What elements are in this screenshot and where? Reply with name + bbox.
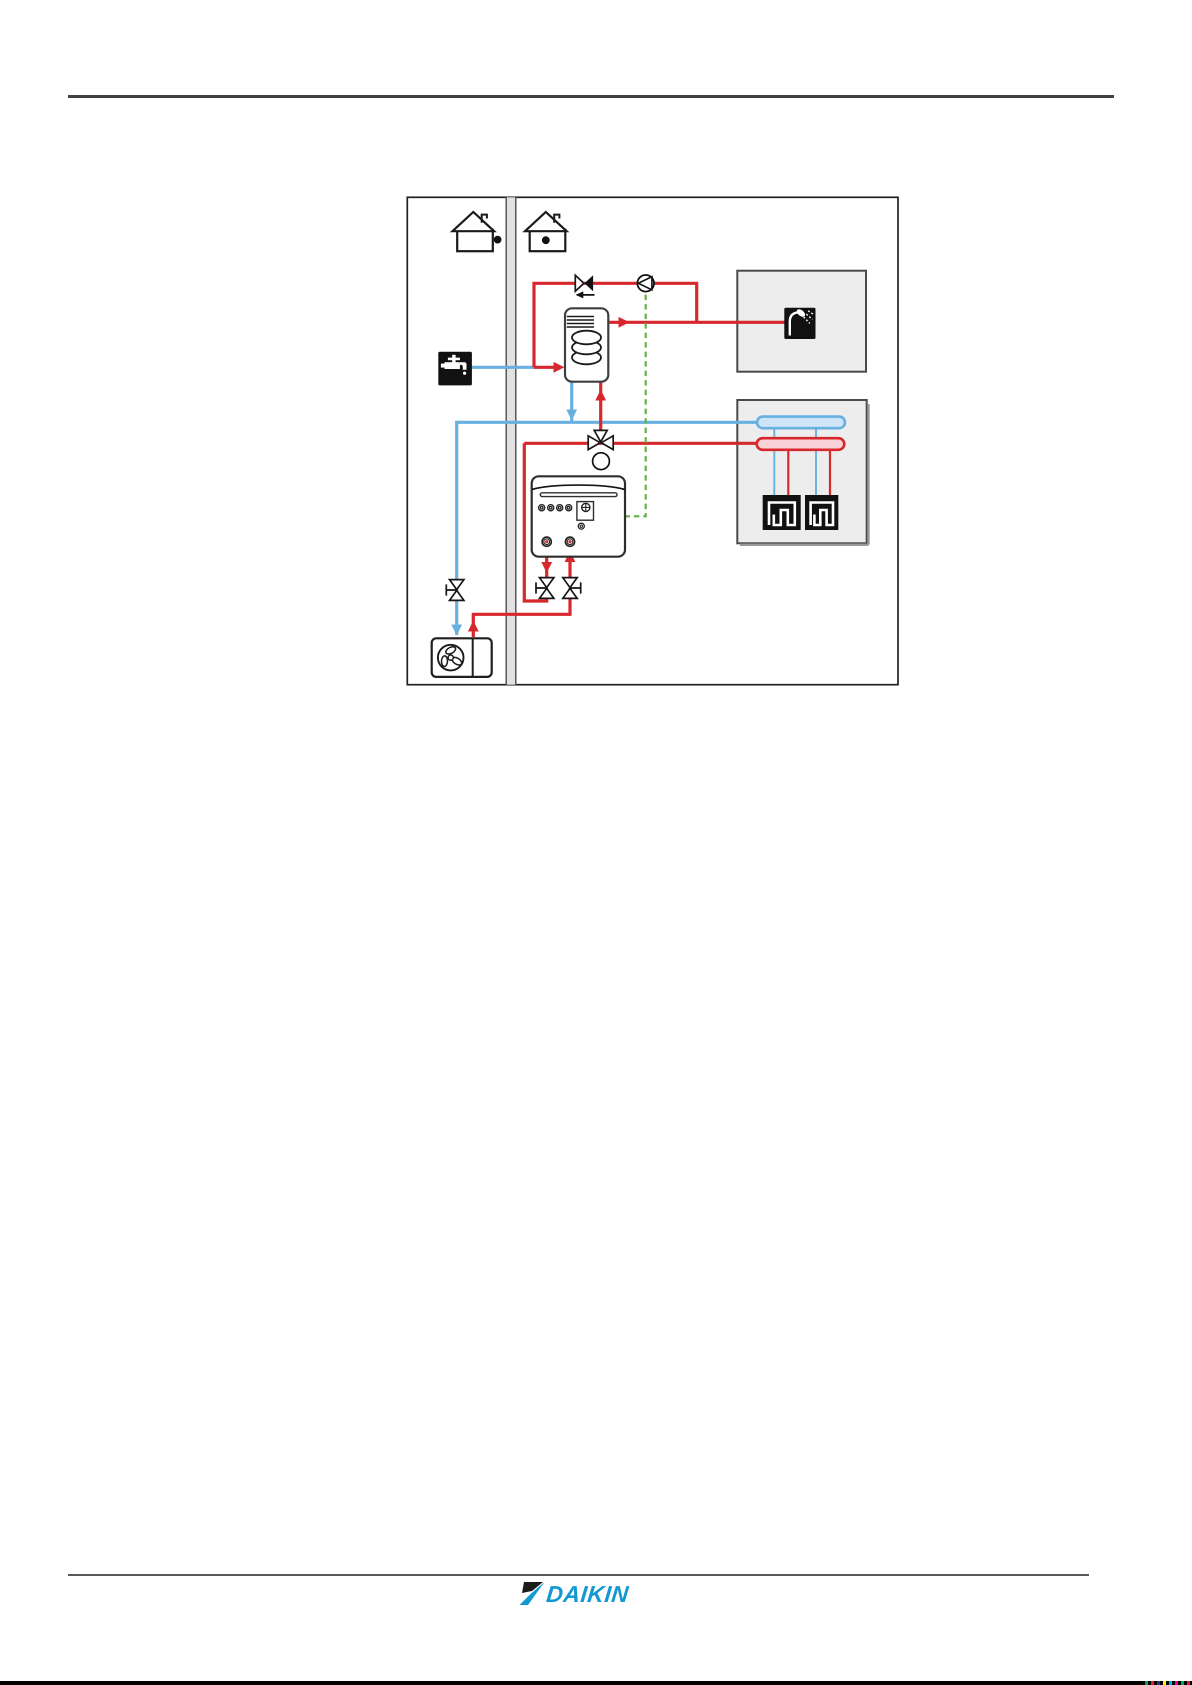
unit-actuator — [577, 502, 594, 521]
tank-coil — [572, 331, 601, 365]
flow-manifold — [757, 438, 845, 450]
three-way-valve-icon — [588, 430, 613, 469]
flow-arrow-right — [619, 317, 630, 328]
house-dot-inside-icon — [525, 212, 567, 251]
shutoff-valve-icon — [563, 578, 581, 599]
flow-arrow-up — [595, 390, 606, 401]
shutoff-valve-icon — [536, 578, 554, 599]
underfloor-loop-icon — [805, 495, 838, 530]
manual-page: DAIKIN — [0, 0, 1192, 1685]
logo-text: DAIKIN — [545, 1581, 631, 1607]
print-edge-bar — [0, 1681, 1192, 1685]
flow-arrow-up — [468, 621, 479, 632]
header-rule — [68, 95, 1114, 98]
house-dot-outside-icon — [453, 212, 502, 251]
outdoor-unit — [432, 638, 492, 677]
direction-arrow — [576, 291, 584, 298]
indoor-unit — [532, 476, 625, 556]
hydraulic-system-diagram — [400, 190, 905, 690]
shower-icon — [784, 308, 815, 339]
recirculation-pipe — [534, 283, 697, 367]
faucet-icon — [438, 352, 472, 386]
flow-arrow-right — [554, 362, 565, 373]
outdoor-dot — [494, 236, 502, 244]
flow-arrow-down — [566, 410, 577, 421]
flow-arrow-down — [451, 625, 462, 636]
return-manifold — [757, 417, 845, 429]
wall-divider — [506, 197, 516, 684]
unit-in-pipe — [473, 588, 570, 637]
flow-arrow-down — [541, 562, 552, 573]
indoor-dot — [542, 236, 550, 244]
footer-rule — [68, 1574, 1089, 1576]
check-valve-icon — [575, 275, 594, 298]
print-registration-marks — [1145, 1681, 1190, 1685]
fan-icon — [438, 645, 464, 671]
pump-icon — [637, 275, 654, 292]
unit-slot — [540, 493, 617, 497]
daikin-logo: DAIKIN — [517, 1580, 647, 1608]
stop-valve-icon — [446, 580, 464, 601]
underfloor-loop-icon — [763, 495, 801, 530]
dhw-tank — [565, 308, 608, 381]
